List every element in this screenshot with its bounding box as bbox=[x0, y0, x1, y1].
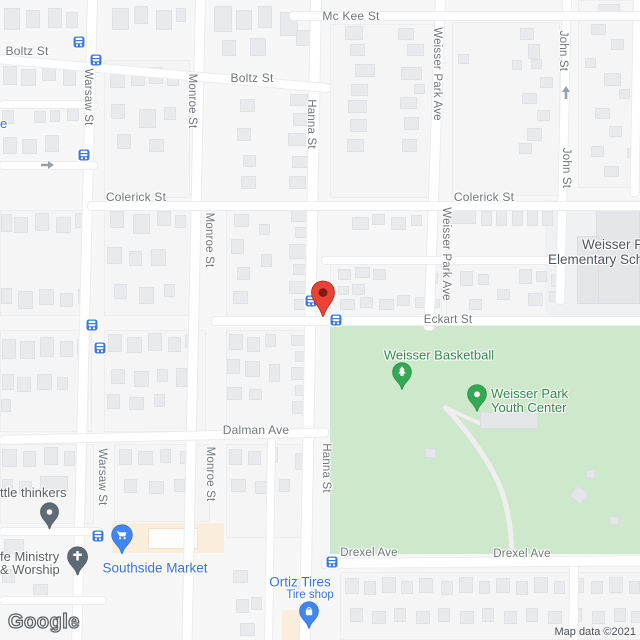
building bbox=[174, 479, 185, 492]
building bbox=[233, 570, 248, 583]
shopping-cart-pin-icon[interactable] bbox=[110, 524, 134, 557]
building bbox=[348, 100, 367, 113]
building bbox=[133, 214, 150, 234]
building bbox=[110, 211, 124, 228]
building bbox=[119, 449, 132, 465]
one-way-arrow-east-icon bbox=[41, 161, 54, 169]
building bbox=[139, 287, 154, 304]
building bbox=[279, 479, 290, 492]
building bbox=[124, 479, 137, 493]
building bbox=[3, 66, 17, 85]
building bbox=[1, 214, 12, 232]
building bbox=[33, 584, 48, 595]
building bbox=[111, 369, 125, 384]
building bbox=[156, 10, 172, 30]
building bbox=[250, 38, 266, 56]
building bbox=[460, 611, 474, 624]
building bbox=[351, 84, 368, 96]
street-label-boltz: Boltz St bbox=[6, 44, 49, 58]
building bbox=[595, 108, 610, 119]
street-label-warsaw: Warsaw St bbox=[82, 69, 94, 126]
building bbox=[469, 299, 482, 310]
building bbox=[512, 211, 523, 226]
bus-stop-icon[interactable] bbox=[72, 35, 86, 49]
building bbox=[231, 239, 244, 254]
building bbox=[345, 26, 363, 40]
building bbox=[34, 111, 46, 123]
building bbox=[18, 291, 33, 309]
shopping-bag-pin-icon[interactable] bbox=[298, 601, 320, 632]
road bbox=[88, 202, 640, 210]
building bbox=[531, 59, 542, 69]
building bbox=[355, 267, 370, 278]
poi-label-southside-market[interactable]: Southside Market bbox=[102, 561, 207, 576]
building bbox=[237, 128, 251, 141]
generic-gray-pin-icon[interactable] bbox=[39, 502, 60, 533]
building bbox=[117, 134, 131, 149]
building bbox=[149, 481, 164, 494]
building bbox=[261, 254, 272, 267]
map-canvas[interactable]: Mc Kee St Boltz St Boltz St Colerick St … bbox=[0, 0, 640, 640]
building bbox=[2, 339, 16, 359]
building bbox=[414, 84, 425, 94]
building bbox=[347, 139, 364, 152]
poi-label-school-line1: Weisser Pa bbox=[582, 237, 640, 252]
building bbox=[554, 581, 565, 594]
bus-stop-icon[interactable] bbox=[325, 555, 339, 569]
building bbox=[345, 578, 359, 594]
building bbox=[114, 284, 127, 299]
building bbox=[129, 397, 144, 410]
street-label-monroe: Monroe St bbox=[186, 74, 198, 129]
building bbox=[527, 209, 538, 226]
building bbox=[352, 217, 369, 230]
building bbox=[400, 97, 417, 109]
google-logo[interactable]: Google bbox=[8, 611, 80, 634]
building bbox=[591, 24, 606, 35]
building bbox=[129, 251, 142, 266]
building bbox=[157, 211, 171, 226]
building bbox=[22, 139, 37, 154]
building bbox=[629, 581, 640, 594]
building bbox=[591, 581, 603, 594]
building bbox=[438, 608, 450, 622]
building bbox=[631, 611, 640, 623]
building bbox=[236, 10, 252, 30]
building bbox=[355, 64, 375, 77]
street-label-monroe: Monroe St bbox=[204, 447, 216, 502]
city-block bbox=[452, 22, 560, 196]
building bbox=[398, 28, 414, 40]
building bbox=[111, 104, 125, 119]
street-label-weisser-park-ave: Weisser Park Ave bbox=[431, 27, 443, 121]
building bbox=[526, 608, 538, 622]
building bbox=[214, 6, 232, 32]
building bbox=[63, 69, 76, 86]
building bbox=[512, 60, 522, 70]
building bbox=[293, 264, 307, 275]
building bbox=[478, 274, 489, 285]
building bbox=[107, 394, 120, 409]
building bbox=[609, 126, 622, 137]
building bbox=[229, 449, 242, 465]
building bbox=[160, 449, 171, 463]
building bbox=[148, 333, 162, 351]
building bbox=[50, 110, 60, 122]
building bbox=[516, 581, 528, 595]
street-label-drexel: Drexel Ave bbox=[493, 548, 550, 560]
building bbox=[338, 286, 349, 295]
building bbox=[585, 58, 596, 68]
building bbox=[459, 577, 473, 593]
street-label-mckee: Mc Kee St bbox=[322, 9, 379, 23]
building bbox=[168, 337, 181, 352]
building bbox=[496, 209, 507, 226]
building bbox=[458, 54, 469, 64]
street-label-hanna: Hanna St bbox=[320, 443, 332, 493]
building bbox=[528, 44, 540, 59]
building bbox=[338, 269, 351, 280]
building bbox=[255, 481, 268, 494]
building bbox=[604, 73, 621, 86]
poi-label-school-line2: Elementary Scho bbox=[548, 252, 640, 267]
red-map-marker[interactable] bbox=[310, 280, 336, 318]
street-label-colerick: Colerick St bbox=[454, 190, 514, 204]
building bbox=[522, 93, 537, 104]
street-label-drexel: Drexel Ave bbox=[340, 547, 397, 559]
building bbox=[134, 6, 148, 24]
building bbox=[17, 377, 31, 392]
park-tree-pin-icon[interactable] bbox=[391, 362, 413, 393]
building bbox=[372, 214, 385, 225]
building bbox=[340, 299, 355, 310]
building bbox=[241, 176, 256, 189]
building bbox=[373, 269, 386, 280]
building bbox=[176, 8, 186, 22]
building bbox=[269, 364, 280, 382]
map-attribution: Map data ©2021 bbox=[555, 626, 637, 638]
poi-label-youth-center-line1[interactable]: Weisser Park bbox=[491, 386, 568, 401]
building bbox=[401, 67, 422, 80]
building bbox=[258, 6, 272, 28]
building bbox=[175, 215, 186, 228]
building bbox=[391, 217, 406, 230]
bus-stop-icon[interactable] bbox=[77, 148, 91, 162]
building bbox=[497, 289, 510, 300]
poi-label-ministry-line2[interactable]: & Worship bbox=[0, 562, 60, 577]
building bbox=[45, 135, 59, 152]
building bbox=[419, 578, 433, 593]
building bbox=[611, 39, 624, 50]
building bbox=[67, 107, 79, 121]
partial-poi-label[interactable]: e bbox=[0, 116, 7, 131]
building bbox=[154, 394, 165, 407]
building bbox=[249, 389, 262, 400]
building bbox=[289, 281, 307, 294]
building bbox=[404, 117, 419, 130]
building bbox=[48, 8, 62, 28]
building bbox=[540, 77, 553, 88]
building bbox=[127, 337, 142, 353]
building bbox=[234, 214, 249, 227]
building bbox=[20, 341, 35, 359]
street-label-eckart: Eckart St bbox=[424, 314, 472, 326]
street-label-weisser-park-ave: Weisser Park Ave bbox=[440, 207, 452, 301]
building bbox=[379, 299, 394, 310]
building bbox=[108, 334, 122, 352]
building bbox=[289, 176, 306, 189]
building bbox=[57, 377, 68, 390]
street-label-monroe: Monroe St bbox=[203, 213, 215, 268]
building bbox=[542, 211, 553, 226]
building bbox=[586, 470, 595, 478]
street-label-colerick: Colerick St bbox=[106, 190, 166, 204]
building bbox=[157, 369, 168, 382]
building bbox=[64, 451, 75, 466]
building bbox=[482, 608, 494, 622]
building bbox=[289, 244, 307, 259]
building bbox=[243, 155, 256, 167]
building bbox=[4, 8, 20, 30]
building bbox=[35, 213, 49, 231]
building bbox=[227, 387, 242, 400]
building bbox=[149, 139, 164, 152]
building bbox=[231, 479, 246, 492]
building bbox=[14, 217, 28, 233]
building bbox=[176, 368, 187, 387]
building bbox=[164, 284, 175, 297]
building bbox=[60, 341, 73, 357]
building bbox=[481, 211, 492, 226]
building bbox=[2, 374, 14, 390]
building bbox=[227, 359, 240, 374]
street-label-john: John St bbox=[557, 31, 569, 71]
building bbox=[134, 371, 149, 387]
building bbox=[402, 139, 417, 152]
building bbox=[245, 361, 260, 377]
building bbox=[504, 611, 517, 624]
building bbox=[496, 578, 510, 593]
building bbox=[537, 110, 550, 121]
building bbox=[139, 109, 156, 128]
building bbox=[26, 10, 40, 28]
building bbox=[237, 267, 250, 280]
building bbox=[288, 133, 306, 146]
building bbox=[2, 449, 17, 467]
building bbox=[360, 297, 373, 308]
building bbox=[229, 334, 243, 350]
building bbox=[240, 623, 255, 636]
building bbox=[460, 271, 473, 286]
building bbox=[591, 146, 604, 157]
building bbox=[138, 451, 153, 465]
building bbox=[23, 451, 36, 467]
building bbox=[107, 247, 122, 264]
youth-center-pin-icon[interactable] bbox=[466, 384, 488, 415]
building bbox=[528, 293, 543, 306]
bus-stop-icon[interactable] bbox=[89, 53, 103, 67]
building bbox=[441, 581, 453, 595]
poi-label-youth-center-line2[interactable]: Youth Center bbox=[491, 400, 566, 415]
building bbox=[240, 99, 255, 112]
building bbox=[1, 399, 11, 412]
building bbox=[39, 289, 54, 305]
building bbox=[247, 337, 260, 352]
building bbox=[350, 608, 363, 622]
street-label-boltz: Boltz St bbox=[231, 71, 274, 85]
building bbox=[21, 69, 36, 86]
building bbox=[610, 516, 619, 525]
building bbox=[394, 608, 406, 622]
one-way-arrow-north-icon bbox=[562, 86, 570, 99]
building bbox=[352, 284, 365, 295]
building bbox=[407, 44, 424, 56]
building bbox=[1, 288, 12, 304]
street-label-hanna: Hanna St bbox=[305, 99, 317, 149]
building bbox=[614, 608, 626, 622]
building bbox=[397, 295, 410, 306]
building bbox=[536, 271, 547, 282]
building bbox=[534, 577, 548, 593]
building bbox=[40, 337, 54, 357]
bus-stop-icon[interactable] bbox=[91, 529, 105, 543]
building bbox=[37, 374, 52, 390]
building bbox=[265, 334, 276, 347]
building bbox=[416, 611, 430, 624]
building bbox=[592, 611, 605, 624]
building bbox=[609, 577, 623, 593]
building bbox=[292, 156, 308, 168]
building bbox=[519, 269, 532, 284]
building bbox=[222, 40, 236, 56]
building bbox=[259, 224, 270, 235]
building bbox=[60, 293, 73, 307]
building bbox=[112, 8, 129, 30]
building bbox=[350, 119, 367, 132]
building bbox=[3, 137, 17, 154]
building bbox=[382, 577, 396, 593]
building bbox=[66, 12, 78, 28]
building bbox=[527, 128, 542, 141]
building bbox=[151, 249, 166, 266]
building bbox=[56, 217, 71, 233]
building bbox=[44, 447, 58, 465]
road bbox=[0, 597, 106, 604]
street-label-john: John St bbox=[560, 148, 572, 188]
building bbox=[236, 599, 249, 613]
poi-label-tire-shop: Tire shop bbox=[286, 589, 334, 601]
building bbox=[364, 581, 376, 595]
poi-label-weisser-basketball[interactable]: Weisser Basketball bbox=[384, 348, 494, 363]
building bbox=[164, 107, 176, 120]
street-label-warsaw: Warsaw St bbox=[96, 449, 108, 506]
building bbox=[248, 451, 261, 465]
building bbox=[425, 448, 436, 458]
bus-stop-icon[interactable] bbox=[93, 341, 107, 355]
building bbox=[372, 611, 386, 624]
building bbox=[411, 215, 422, 226]
church-pin-icon[interactable] bbox=[66, 546, 89, 579]
bus-stop-icon[interactable] bbox=[85, 318, 99, 332]
poi-label-little-thinkers[interactable]: ttle thinkers bbox=[0, 485, 66, 500]
building bbox=[604, 166, 619, 177]
building bbox=[251, 597, 262, 610]
building bbox=[619, 89, 630, 99]
building bbox=[401, 581, 413, 594]
building bbox=[519, 143, 532, 154]
street-label-dalman: Dalman Ave bbox=[223, 423, 289, 437]
building bbox=[520, 28, 534, 40]
building bbox=[479, 581, 490, 594]
building bbox=[233, 291, 248, 304]
building bbox=[548, 611, 562, 624]
building bbox=[350, 44, 365, 56]
poi-label-ortiz-tires[interactable]: Ortiz Tires bbox=[269, 575, 331, 590]
